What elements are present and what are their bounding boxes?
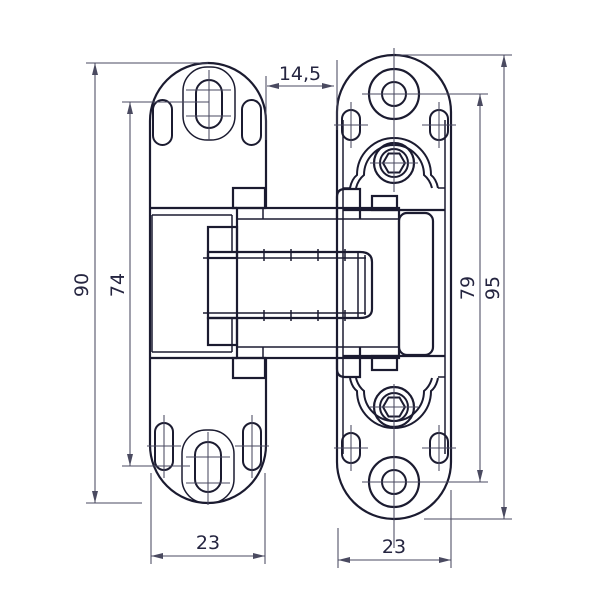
screw-slot-top-left — [153, 100, 172, 145]
dim-label-right-plate-width: 23 — [382, 536, 406, 558]
left-plate-top-tab — [233, 188, 265, 208]
drawing-canvas: 14,5 90 74 79 95 23 23 — [0, 0, 600, 600]
pivot-arm-link-ticks — [264, 249, 345, 321]
dim-ext-left-hole-spacing — [122, 102, 209, 466]
dim-label-left-plate-height: 90 — [71, 273, 93, 297]
center-lines-top-slot — [186, 70, 231, 140]
hinge-technical-drawing: 14,5 90 74 79 95 23 23 — [0, 0, 600, 600]
center-lines-bottom-slot — [186, 432, 230, 505]
right-plate-bottom-flare-block — [337, 347, 360, 377]
hinge-case-inner-edges — [237, 208, 399, 358]
dim-label-right-plate-height: 95 — [482, 276, 504, 300]
dim-label-gap: 14,5 — [279, 63, 321, 85]
left-plate-mortise-pocket — [152, 215, 232, 352]
pivot-arm-outline — [208, 252, 372, 318]
hinge-case — [237, 208, 399, 358]
dim-label-left-plate-width: 23 — [196, 532, 220, 554]
left-plate-bottom-tab — [233, 358, 265, 378]
pivot-arm-inner-edges — [203, 252, 366, 318]
screw-slot-top-right — [242, 100, 261, 145]
right-mounting-plate — [334, 48, 456, 548]
right-plate-top-flare-block — [337, 189, 360, 219]
left-plate-cutout-edges — [150, 208, 237, 358]
dim-label-left-hole-spacing: 74 — [107, 273, 129, 297]
dim-label-right-hole-spacing: 79 — [457, 276, 479, 300]
arm-cup-recess — [399, 213, 433, 355]
